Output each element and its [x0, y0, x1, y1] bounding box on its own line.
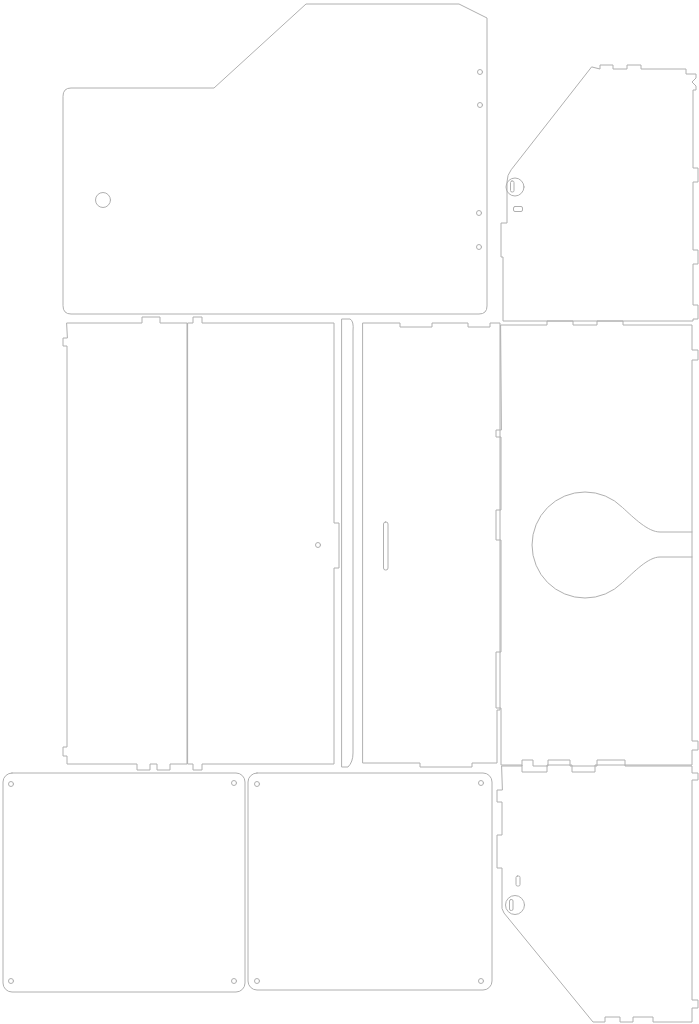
divider-strip	[342, 319, 353, 767]
middle-center-left-panel-circle-1	[316, 543, 321, 548]
bottom-right-panel	[497, 760, 698, 1022]
bottom-left-plate-circle-2	[232, 781, 237, 786]
bottom-middle-plate-circle-1	[255, 782, 260, 787]
middle-center-left-panel	[188, 317, 339, 770]
top-left-panel-circle-3	[478, 103, 483, 108]
bottom-left-plate-circle-4	[232, 979, 237, 984]
center-door-panel	[363, 323, 500, 767]
bottom-middle-plate-circle-3	[255, 979, 260, 984]
middle-left-panel	[63, 317, 187, 770]
top-left-panel-circle-4	[477, 211, 482, 216]
top-left-panel-circle-5	[477, 245, 482, 250]
bottom-left-plate	[3, 773, 245, 992]
center-door-panel-rect-1	[384, 522, 389, 570]
bottom-left-plate-circle-1	[9, 782, 14, 787]
top-right-panel-rect-3	[514, 207, 523, 212]
bottom-middle-plate-circle-2	[479, 781, 484, 786]
divider-strip-path-0	[342, 319, 353, 767]
middle-left-panel-path-0	[63, 317, 187, 770]
bottom-middle-plate	[248, 773, 492, 990]
bottom-right-panel-rect-3	[510, 900, 514, 911]
middle-right-panel-path-0	[496, 321, 698, 772]
middle-right-panel-path-1	[532, 492, 692, 598]
middle-right-panel	[496, 321, 698, 772]
bottom-left-plate-rect-0	[3, 773, 245, 992]
bottom-left-plate-circle-3	[9, 979, 14, 984]
bottom-right-panel-rect-1	[516, 876, 520, 886]
bottom-right-panel-circle-2	[506, 896, 525, 915]
bottom-middle-plate-rect-0	[248, 773, 492, 990]
top-left-panel-circle-1	[96, 193, 111, 208]
top-right-panel-rect-2	[511, 181, 515, 192]
cut-template-canvas	[0, 0, 699, 1024]
top-left-panel-path-0	[63, 4, 487, 314]
cut-template-page	[0, 0, 699, 1024]
bottom-right-panel-path-0	[497, 760, 698, 1022]
top-left-panel-circle-2	[478, 70, 483, 75]
bottom-middle-plate-circle-4	[479, 979, 484, 984]
top-right-panel	[501, 65, 698, 321]
top-right-panel-path-0	[501, 65, 698, 321]
top-right-panel-circle-1	[506, 178, 524, 196]
top-left-panel	[63, 4, 487, 314]
